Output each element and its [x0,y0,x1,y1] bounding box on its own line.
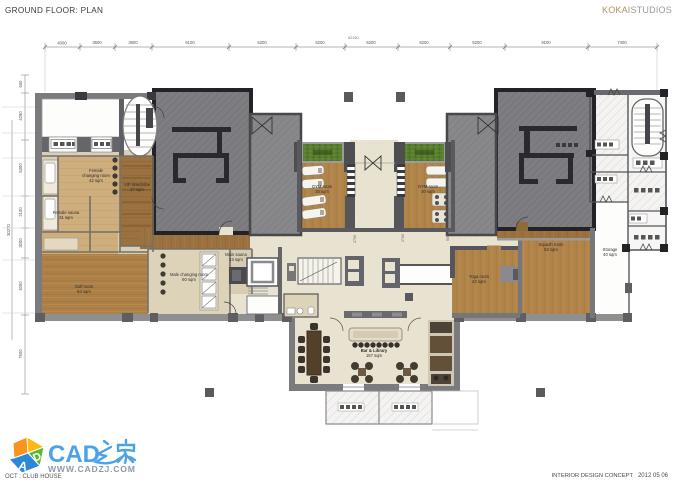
svg-text:53 sqm: 53 sqm [544,247,558,252]
svg-text:2700: 2700 [353,235,357,243]
svg-text:31 sqm: 31 sqm [59,215,73,220]
svg-text:6100: 6100 [185,40,195,45]
svg-text:30270: 30270 [6,224,11,236]
svg-text:3600: 3600 [92,40,102,45]
svg-text:KOKAISTUDIOS: KOKAISTUDIOS [602,5,672,15]
svg-text:6200: 6200 [419,40,429,45]
svg-text:5200: 5200 [366,40,376,45]
svg-text:5000: 5000 [446,233,450,241]
svg-text:3000: 3000 [18,238,23,248]
svg-text:5300: 5300 [18,163,23,173]
svg-text:27 sqm: 27 sqm [130,187,144,192]
svg-text:9100: 9100 [541,40,551,45]
svg-text:5200: 5200 [472,40,482,45]
svg-text:60 sqm: 60 sqm [182,277,196,282]
svg-text:4000: 4000 [57,41,67,46]
svg-text:40 sqm: 40 sqm [603,252,617,257]
svg-text:42 sqm: 42 sqm [89,178,103,183]
svg-text:4290: 4290 [18,111,23,121]
svg-text:GROUND FLOOR: PLAN: GROUND FLOOR: PLAN [5,6,103,15]
svg-text:30 sqm: 30 sqm [315,189,329,194]
svg-text:5200: 5200 [315,40,325,45]
svg-text:43 sqm: 43 sqm [229,257,243,262]
svg-text:30 sqm: 30 sqm [421,189,435,194]
svg-text:INTERIOR DESIGN CONCEPT: INTERIOR DESIGN CONCEPT [552,473,634,479]
svg-text:7400: 7400 [617,40,627,45]
svg-text:WWW.CADZJ.COM: WWW.CADZJ.COM [48,464,136,474]
svg-text:OCT : CLUB HOUSE: OCT : CLUB HOUSE [5,474,62,480]
svg-text:3600: 3600 [128,40,138,45]
svg-text:2100: 2100 [18,207,23,217]
svg-text:600: 600 [18,80,23,88]
svg-text:5200: 5200 [257,40,267,45]
svg-text:62160: 62160 [348,36,359,40]
svg-text:84 sqm: 84 sqm [77,289,91,294]
svg-text:2700: 2700 [401,234,405,242]
svg-text:157 sqm: 157 sqm [366,353,383,358]
svg-text:2012 05 06: 2012 05 06 [638,473,669,479]
svg-text:4050: 4050 [18,281,23,291]
svg-text:42 sqm: 42 sqm [472,279,486,284]
svg-text:7600: 7600 [18,349,23,359]
